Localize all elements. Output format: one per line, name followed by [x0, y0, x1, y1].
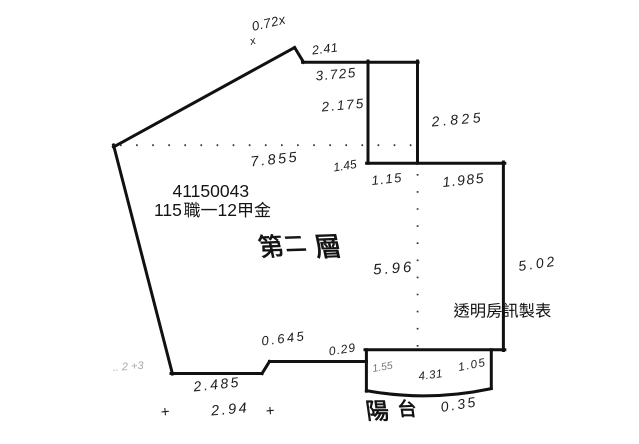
svg-text:1.15: 1.15: [371, 170, 404, 188]
svg-text:3.725: 3.725: [315, 65, 357, 84]
svg-text:0.29: 0.29: [328, 340, 357, 358]
svg-text:+: +: [160, 403, 170, 421]
svg-text:x: x: [248, 35, 258, 48]
svg-text:5.02: 5.02: [517, 253, 558, 274]
svg-text:2.94: 2.94: [209, 400, 249, 419]
svg-text:+: +: [265, 402, 275, 420]
svg-text:7.855: 7.855: [250, 149, 300, 170]
svg-text:1.45: 1.45: [332, 157, 358, 175]
svg-text:1.985: 1.985: [442, 170, 486, 190]
svg-text:2.485: 2.485: [192, 374, 242, 395]
svg-text:4.31: 4.31: [418, 368, 444, 383]
svg-text:1.05: 1.05: [457, 357, 487, 374]
svg-text:1.55: 1.55: [371, 360, 393, 375]
svg-text:0.645: 0.645: [261, 328, 308, 348]
svg-text:0.72x: 0.72x: [250, 12, 287, 34]
svg-text:115: 115: [154, 200, 182, 220]
svg-text:2.41: 2.41: [310, 40, 339, 57]
svg-text:2.175: 2.175: [320, 96, 366, 115]
svg-text:5.96: 5.96: [373, 259, 415, 279]
svg-text:41150043: 41150043: [173, 181, 250, 201]
svg-text:2.825: 2.825: [430, 109, 485, 130]
svg-text:.. 2 +3: .. 2 +3: [112, 360, 145, 374]
svg-text:12: 12: [218, 200, 237, 220]
